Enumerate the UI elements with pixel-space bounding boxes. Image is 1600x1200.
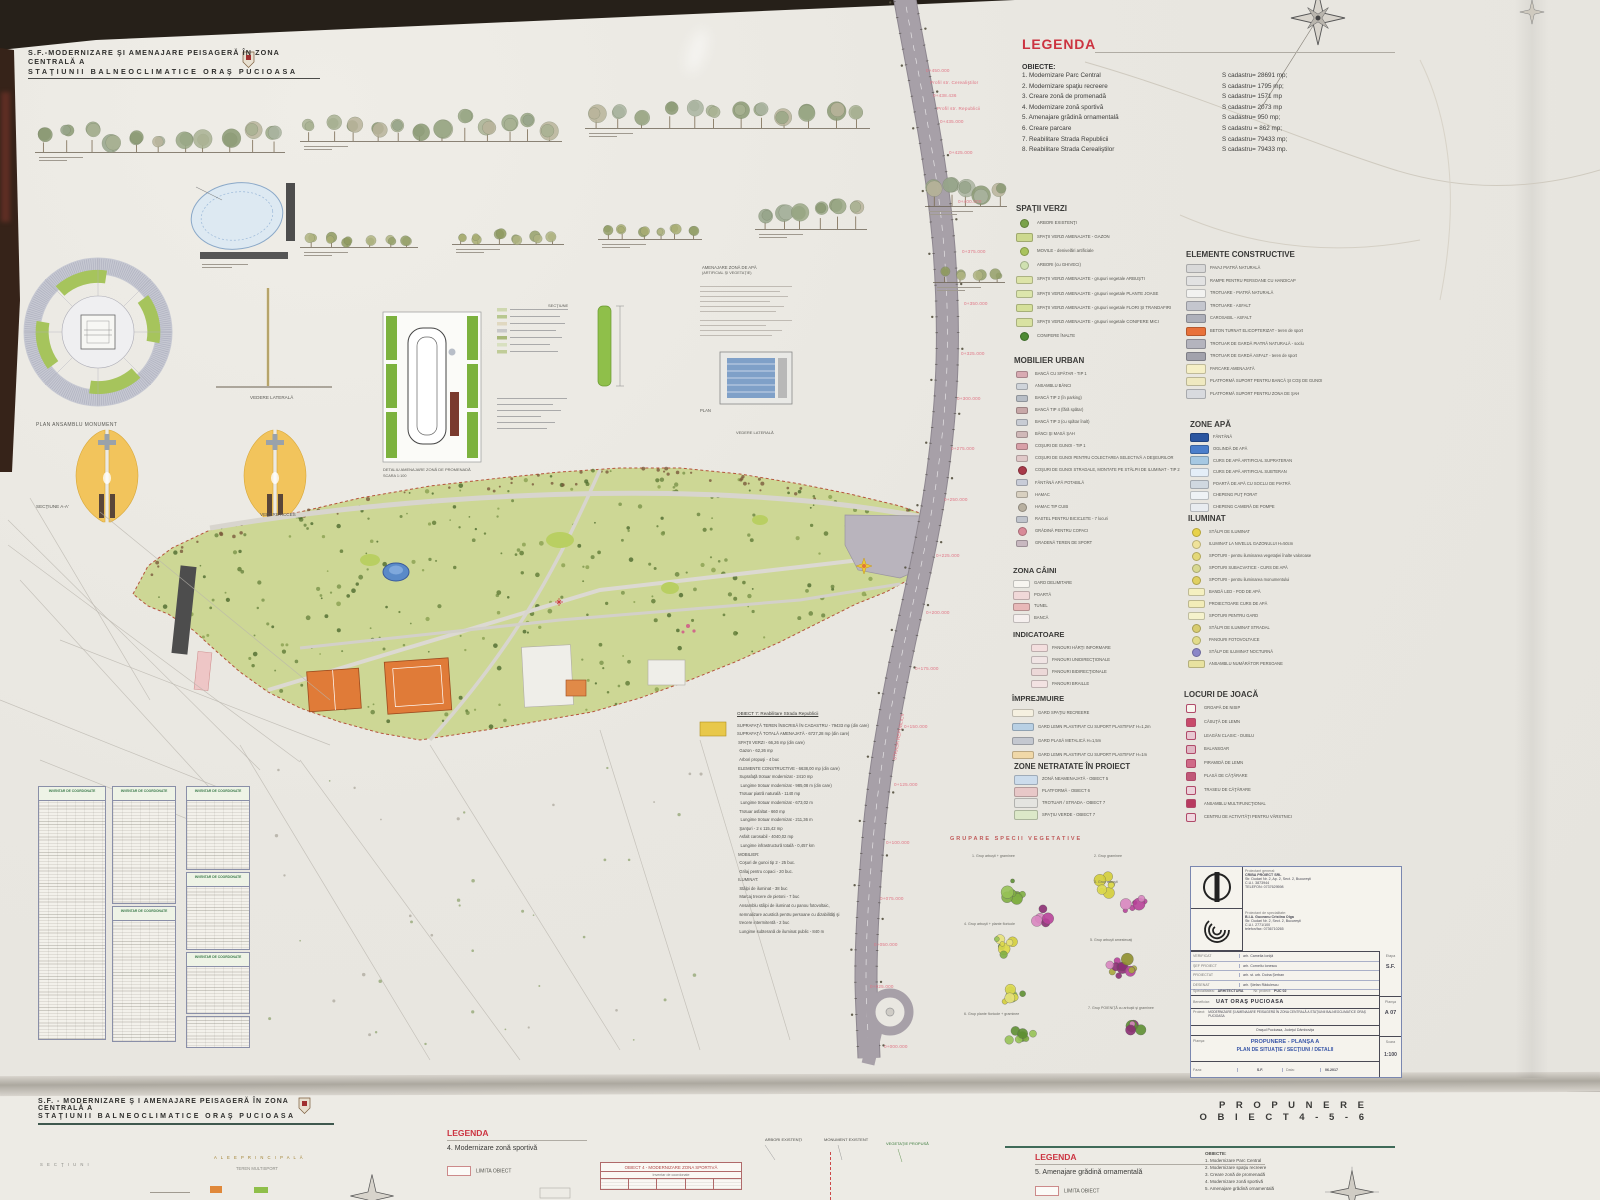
coordinate-table-header: INVENTAR DE COORDONATE — [187, 873, 249, 887]
plansa-title-1: PROPUNERE - PLANŞA A — [1191, 1036, 1379, 1045]
coordinate-table-header: INVENTAR DE COORDONATE — [187, 953, 249, 967]
object7-line: Gazon - 62,26 mp — [737, 747, 887, 756]
object-name: 6. Creare parcare — [1022, 124, 1222, 135]
chainage-label: 0+200.000 — [926, 610, 950, 615]
coordinate-table-header: INVENTAR DE COORDONATE — [187, 787, 249, 801]
legend-item-label: FÂNTÂNĂ APĂ POTABILĂ — [1035, 481, 1084, 486]
legend-item-label: TUNEL — [1034, 604, 1048, 609]
species-group-caption: 3. Grup arbuşti — [1094, 880, 1118, 884]
limit-swatch — [447, 1166, 471, 1176]
object-name: 3. Creare zonă de promenadă — [1022, 92, 1222, 103]
species-group-caption: 4. Grup arbuşti + plante floricole — [964, 922, 1015, 926]
species-group-caption: 6. Grup plante floricole + graminee — [964, 1012, 1019, 1016]
legend-section-spatii-verzi: SPAŢII VERZI ARBORI EXISTENŢISPAŢII VERZ… — [1016, 204, 1186, 344]
object7-line: semnalizare acustică pentru persoane cu … — [737, 911, 887, 920]
section-items: PANOURI HĂRŢI INFORMAREPANOURI UNIDIRECŢ… — [1013, 642, 1183, 690]
legend-item-label: BANDĂ LED - POD DE APĂ — [1209, 590, 1261, 595]
object7-lines: SUPRAFAŢĂ TEREN ÎNSCRISĂ ÎN CADASTRU - 7… — [737, 722, 887, 937]
legend-section-elemente-constructive: ELEMENTE CONSTRUCTIVE PAVAJ PIATRĂ NATUR… — [1186, 250, 1388, 401]
legend-item-label: PANOURI FOTOVOLTAICE — [1209, 638, 1259, 643]
legend-item: SPAŢII VERZI AMENAJATE - grupuri vegetal… — [1016, 315, 1186, 329]
legend-item: CURS DE APĂ ARTIFICIAL SUBTERAN — [1190, 467, 1390, 479]
water-detail-drawing — [700, 286, 792, 404]
legend4-block: LEGENDA 4. Modernizare zonă sportivă LIM… — [447, 1128, 587, 1176]
object-item: 2. Modernizare spaţiu recreere — [1205, 1164, 1274, 1171]
object7-line: Trotuar asfaltat - 660 mp — [737, 808, 887, 817]
staff-role: ŞEF PROIECT — [1191, 964, 1240, 968]
chainage-label: 0+435.000 — [940, 119, 964, 124]
legend-item: CURS DE APĂ ARTIFICIAL SUPRATERAN — [1190, 455, 1390, 467]
legend-item-label: BANCĂ CU SPĂTAR - TIP 1 — [1035, 372, 1087, 377]
general-designer-info: Proiectant general: CRIBA PROIECT SRL St… — [1245, 869, 1397, 889]
chainage-label: 0+050.000 — [874, 942, 898, 947]
date-label: Data: — [1283, 1068, 1321, 1072]
legend-swatch — [1018, 466, 1027, 475]
legend-item-label: BĂNCI ŞI MASĂ ŞAH — [1035, 432, 1075, 437]
legend-item-label: SPAŢII VERZI AMENAJATE - GAZON — [1037, 235, 1110, 240]
legend-item: SPOTURI - pentru iluminarea vegetaţiei î… — [1188, 550, 1390, 562]
chainage-label: 0+125.000 — [894, 782, 918, 787]
legend-item-label: ANSAMBLU NUMĂRĂTOR PERSOANE — [1209, 662, 1283, 667]
legend-item-label: STÂLPI DE ILUMINAT STRADAL — [1209, 626, 1270, 631]
legend-item-label: SPAŢII VERZI AMENAJATE - grupuri vegetal… — [1037, 306, 1171, 311]
legend-swatch — [1188, 600, 1205, 609]
legend-item: ZONĂ NEAMENAJATĂ - OBIECT 5 — [1014, 774, 1186, 786]
section-title: ÎMPREJMUIRE — [1012, 694, 1184, 703]
legend-swatch — [1012, 751, 1034, 760]
coordinate-table: INVENTAR DE COORDONATE — [186, 786, 250, 870]
legend-item: TRASEU DE CĂŢĂRARE — [1184, 784, 1384, 798]
legend-title: LEGENDA — [1022, 36, 1096, 52]
legend-item: PANOURI HĂRŢI INFORMARE — [1013, 642, 1183, 654]
legend-swatch — [1188, 612, 1205, 621]
monument-figure-drawing — [76, 430, 138, 522]
drawing-caption: SCARA 1:100 — [383, 474, 406, 478]
staff-role: VERIFICAT — [1191, 954, 1240, 958]
legend-item: TROTUARE - PIATRĂ NATURALĂ — [1186, 287, 1388, 300]
legend-item-label: BANCĂ TIP 4 (fără spătar) — [1035, 408, 1083, 413]
legend-item: STÂLP DE ILUMINAT NOCTURNĂ — [1188, 646, 1390, 658]
staff-rows: VERIFICAT arh. Camelia Ioniţă ŞEF PROIEC… — [1191, 951, 1379, 990]
legend-item: SPOTURI PENTRU GARD — [1188, 610, 1390, 622]
legend-item: SPAŢII VERZI AMENAJATE - grupuri vegetal… — [1016, 287, 1186, 301]
project-label: Proiect: — [1191, 1009, 1205, 1025]
object7-line: Arbori propuşi - 4 buc — [737, 756, 887, 765]
legend-item-label: TROTUARE - ASFALT — [1210, 304, 1251, 309]
legend-item: SPAŢII VERZI AMENAJATE - grupuri vegetal… — [1016, 273, 1186, 287]
coordinate-table: INVENTAR DE COORDONATE — [112, 906, 176, 1042]
sheet2-objects-list: OBIECTE: 1. Modernizare Parc Central2. M… — [1205, 1150, 1274, 1192]
legend-item: HAMAC TIP CUIB — [1014, 501, 1186, 513]
legend-item-label: COŞURI DE GUNOI - TIP 1 — [1035, 444, 1086, 449]
speciality-value: ARHITECTURA — [1215, 989, 1244, 993]
legend-item-label: PIRAMIDĂ DE LEMN — [1204, 761, 1243, 766]
object7-line: Lungime trotuar modernizat - 673,02 m — [737, 799, 887, 808]
legend-item: STÂLPI DE ILUMINAT STRADAL — [1188, 622, 1390, 634]
section-title: ELEMENTE CONSTRUCTIVE — [1186, 250, 1388, 259]
legend-item-label: SPAŢII VERZI AMENAJATE - grupuri vegetal… — [1037, 320, 1159, 325]
location-row: Oraşul Pucioasa, Judeţul Dâmboviţa — [1191, 1026, 1379, 1036]
sheet-number-value: A 07 — [1380, 1004, 1401, 1016]
object7-line: Marcaj trecere de pietoni - 7 buc — [737, 893, 887, 902]
legend-swatch — [1190, 433, 1209, 442]
legend-item-label: PAVAJ PIATRĂ NATURALĂ — [1210, 266, 1260, 271]
species-group-caption: 1. Grup arbuşti + graminee — [972, 854, 1015, 858]
legend-item: PROIECTOARE CURS DE APĂ — [1188, 598, 1390, 610]
legend-item: TROTUAR DE GARDĂ ASFALT - teren de sport — [1186, 350, 1388, 363]
staff-row: VERIFICAT arh. Camelia Ioniţă — [1191, 952, 1379, 962]
legend-swatch — [1186, 389, 1206, 399]
legend-section-zone-netratate: ZONE NETRATATE ÎN PROIECT ZONĂ NEAMENAJA… — [1014, 762, 1186, 821]
objects-items: 1. Modernizare Parc Central2. Modernizar… — [1205, 1157, 1274, 1192]
legend4-subtitle: 4. Modernizare zonă sportivă — [447, 1145, 587, 1152]
legend-item-label: ANSAMBLU MULTIFUNCŢIONAL — [1204, 802, 1266, 807]
object-name: 2. Modernizare spaţiu recreere — [1022, 82, 1222, 93]
section-title: SPAŢII VERZI — [1016, 204, 1186, 213]
legend-object-row: 8. Reabilitare Strada Cerealiştilor S ca… — [1022, 145, 1394, 156]
legend-swatch — [1016, 276, 1033, 285]
sheet2-label: A L E E P R I N C I P A L Ă — [214, 1155, 304, 1160]
object-name: 4. Modernizare zonă sportivă — [1022, 103, 1222, 114]
staff-role: PROIECTAT — [1191, 973, 1240, 977]
objects-title: OBIECTE: — [1205, 1150, 1274, 1157]
legend-item-label: CHEPENG CAMERĂ DE POMPE — [1213, 505, 1275, 510]
compass-icon-small — [1520, 0, 1544, 24]
legend-item: TROTUAR DE GARDĂ PIATRĂ NATURALĂ - soclu — [1186, 338, 1388, 351]
legend-item-label: BANCĂ TIP 2 (în parking) — [1035, 396, 1082, 401]
legend-item-label: POARTĂ — [1034, 593, 1051, 598]
legend-swatch — [1192, 552, 1201, 561]
legend-item: CHEPENG CAMERĂ DE POMPE — [1190, 502, 1390, 514]
beneficiary-label: Beneficiar: — [1191, 1000, 1210, 1004]
legend-item: PANOURI UNIDIRECŢIONALE — [1013, 654, 1183, 666]
object-area: S cadastru= 79433 mp. — [1222, 145, 1287, 156]
legend-swatch — [1018, 527, 1027, 536]
legend-section-iluminat: ILUMINAT STÂLPI DE ILUMINATILUMINAT LA N… — [1188, 514, 1390, 670]
legend-swatch — [1012, 709, 1034, 718]
legend-swatch — [1190, 480, 1209, 489]
legend-item: SPOTURI - pentru iluminarea monumentului — [1188, 574, 1390, 586]
legend-item-label: PLATFORMĂ - OBIECT 6 — [1042, 789, 1090, 794]
object7-line: ELEMENTE CONSTRUCTIVE - 6638,00 mp (din … — [737, 765, 887, 774]
legend-swatch — [1020, 332, 1029, 341]
legend-swatch — [1186, 731, 1196, 740]
legend-swatch — [1016, 395, 1028, 402]
section-title: MOBILIER URBAN — [1014, 356, 1186, 365]
legend-swatch — [1016, 290, 1033, 299]
legend-swatch — [1192, 540, 1201, 549]
legend-item: GROAPĂ DE NISIP — [1184, 702, 1384, 716]
legend-item-label: SPOTURI - pentru iluminarea monumentului — [1209, 578, 1289, 583]
legend-item-label: SPAŢIU VERDE - OBIECT 7 — [1042, 813, 1095, 818]
designer-phone: TELEFON: 0737629598 — [1245, 885, 1397, 889]
object4-table-subtitle: Inventar de coordonate — [601, 1172, 741, 1179]
legend-section-imprejmuire: ÎMPREJMUIRE GARD SPAŢIU RECREEREGARD LEM… — [1012, 694, 1184, 762]
legend-item-label: MOVILE - denivelări artificiale — [1037, 249, 1094, 254]
legend-section-mobilier-urban: MOBILIER URBAN BANCĂ CU SPĂTAR - TIP 1AN… — [1014, 356, 1186, 549]
sheet2-label: TEREN MULTISPORT — [236, 1166, 278, 1171]
legend-swatch — [1018, 503, 1027, 512]
logo-cell — [1191, 909, 1243, 951]
sheet2-title-line1: S.F. - MODERNIZARE Ş I AMENAJARE PEISAGE… — [38, 1098, 334, 1112]
legend-item-label: RAMPE PENTRU PERSOANE CU HANDICAP — [1210, 279, 1296, 284]
legend-item-label: CĂSUŢĂ DE LEMN — [1204, 720, 1240, 725]
chainage-label: 0+300.000 — [957, 396, 981, 401]
separator-line — [1005, 1146, 1395, 1148]
object7-line: Ansamblu stâlpi de iluminat cu panou fot… — [737, 902, 887, 911]
legend-item-label: ARBORI EXISTENŢI — [1037, 221, 1077, 226]
legend-swatch — [1016, 407, 1028, 414]
legend-swatch — [1186, 799, 1196, 808]
legend-swatch — [1186, 364, 1206, 374]
legend-item: RAMPE PENTRU PERSOANE CU HANDICAP — [1186, 275, 1388, 288]
object7-line: Lungime subterană de iluminat public - 8… — [737, 928, 887, 937]
legend-swatch — [1020, 261, 1029, 270]
coordinate-table: INVENTAR DE COORDONATE — [112, 786, 176, 904]
staff-name: arh. Corneliu Ionescu — [1240, 964, 1277, 968]
object-name: 8. Reabilitare Strada Cerealiştilor — [1022, 145, 1222, 156]
legend-swatch — [1186, 813, 1196, 822]
section-title: ZONE NETRATATE ÎN PROIECT — [1014, 762, 1186, 771]
legend-item: SPOTURI SUBACVATICE - CURS DE APĂ — [1188, 562, 1390, 574]
legend-object-row: 5. Amenajare grădină ornamentală S cadas… — [1022, 113, 1394, 124]
legend-item: CĂSUŢĂ DE LEMN — [1184, 716, 1384, 730]
legend-swatch — [1014, 798, 1038, 808]
project-number-label: Nr. proiect: — [1244, 989, 1271, 993]
staff-name: arh. st. urb. Doina Şerban — [1240, 973, 1284, 977]
object-name: 5. Amenajare grădină ornamentală — [1022, 113, 1222, 124]
legend-item: HAMAC — [1014, 489, 1186, 501]
sheet-number-cell: Planşa A 07 — [1379, 996, 1401, 1036]
chainage-label: 0+350.000 — [964, 301, 988, 306]
legend-item-label: CURS DE APĂ ARTIFICIAL SUPRATERAN — [1213, 459, 1292, 464]
coordinate-table-header: INVENTAR DE COORDONATE — [113, 787, 175, 801]
drawing-caption: VEDERE LATERALĂ — [736, 430, 774, 435]
legend-item-label: BALANSOAR — [1204, 747, 1229, 752]
legend-swatch — [1016, 318, 1033, 327]
legend-swatch — [1031, 680, 1048, 689]
legend-item: GARD LEMN PLASTIFIAT CU SUPORT PLASTIFIA… — [1012, 720, 1184, 734]
drawing-caption: VEDERE ACCES — [260, 512, 296, 517]
legend-item: GRĂDINĂ PENTRU COPACI — [1014, 525, 1186, 537]
chainage-label: 0+438.436 — [933, 93, 957, 98]
coordinate-table: INVENTAR DE COORDONATE — [186, 952, 250, 1014]
section-items: ARBORI EXISTENŢISPAŢII VERZI AMENAJATE -… — [1016, 216, 1186, 344]
specialist-designer-info: Proiectant de specialitate: B.I.A. Gucea… — [1245, 911, 1397, 931]
legend-swatch — [1186, 339, 1206, 349]
legend-item: BANCĂ TIP 3 (cu spătar înalt) — [1014, 416, 1186, 428]
chainage-label: 0+150.000 — [904, 724, 928, 729]
legend-item-label: GARD LEMN PLASTIFIAT CU SUPORT PLASTIFIA… — [1038, 753, 1147, 758]
project-title: MODERNIZARE ŞI AMENAJARE PEISAGERĂ ÎN ZO… — [1205, 1009, 1379, 1025]
legend-item-label: PANOURI BIDIRECŢIONALE — [1052, 670, 1107, 675]
legend-item-label: PANOURI BRAILLE — [1052, 682, 1089, 687]
drawing-caption: PLAN ANSAMBLU MONUMENT — [36, 422, 117, 428]
monument-elevation-drawing — [216, 288, 332, 387]
plansa-label: Planşa: — [1193, 1039, 1205, 1043]
chainage-label: Profil str. Cerealiştilor — [930, 80, 978, 85]
designer-phone: telefon/fax: 0736710265 — [1245, 927, 1397, 931]
drawing-caption: DETALIU AMENAJARE ZONĂ DE PROMENADĂ — [383, 467, 471, 472]
legend-item: COŞURI DE GUNOI - TIP 1 — [1014, 441, 1186, 453]
legend-swatch — [1186, 772, 1196, 781]
legend-swatch — [1186, 704, 1196, 713]
compass-icon — [350, 1174, 393, 1200]
legend-item-label: TROTUAR DE GARDĂ PIATRĂ NATURALĂ - soclu — [1210, 342, 1304, 347]
stage-cell: Etapa S.F. — [1379, 951, 1401, 996]
legend-section-indicatoare: INDICATOARE PANOURI HĂRŢI INFORMAREPANOU… — [1013, 630, 1183, 690]
species-group-caption: 5. Grup arbuşti amestecaţi — [1090, 938, 1132, 942]
species-group-caption: 2. Grup graminee — [1094, 854, 1122, 858]
legend-swatch — [1192, 564, 1201, 573]
object7-line: SUPRAFAŢĂ TEREN ÎNSCRISĂ ÎN CADASTRU - 7… — [737, 722, 887, 731]
object7-line: Grilaj pentru copaci - 20 buc. — [737, 868, 887, 877]
legend-item-label: GROAPĂ DE NISIP — [1204, 706, 1240, 711]
legend-item-label: COŞURI DE GUNOI PENTRU COLECTAREA SELECT… — [1035, 456, 1173, 461]
legend-item-label: BETON TURNAT ELICOPTERIZAT - teren de sp… — [1210, 329, 1303, 334]
legend-swatch — [1186, 759, 1196, 768]
legend-item-label: CAROSABIL - ASFALT — [1210, 316, 1252, 321]
drawing-caption: SECŢIUNE A-A' — [36, 504, 69, 509]
legend-section-zona-caini: ZONA CÂINI GARD DELIMITAREPOARTĂTUNELBAN… — [1013, 566, 1183, 624]
legend-swatch — [1013, 603, 1030, 612]
title-block-cartouche: Proiectant general: CRIBA PROIECT SRL St… — [1190, 866, 1402, 1078]
legend-swatch — [1188, 660, 1205, 669]
legend-item: ANSAMBLU NUMĂRĂTOR PERSOANE — [1188, 658, 1390, 670]
legend-item: BETON TURNAT ELICOPTERIZAT - teren de sp… — [1186, 325, 1388, 338]
section-title: INDICATOARE — [1013, 630, 1183, 639]
legend-object-row: 1. Modernizare Parc Central S cadastru= … — [1022, 71, 1394, 82]
legend-title-rule — [1095, 52, 1395, 53]
object-name: 7. Reabilitare Strada Republicii — [1022, 135, 1222, 146]
object7-title: OBIECT 7: Reabilitare Strada Republicii — [737, 710, 887, 719]
legend-swatch — [1192, 624, 1201, 633]
legend-swatch — [1192, 528, 1201, 537]
legend-swatch — [1186, 745, 1196, 754]
legend-item: PLATFORMĂ SUPORT PENTRU ZONA DE ŞAH — [1186, 388, 1388, 401]
legend-item-label: SPOTURI PENTRU GARD — [1209, 614, 1258, 619]
speciality-row: Specialitatea: ARHITECTURA Nr. proiect: … — [1191, 986, 1379, 996]
drawing-caption: PLAN — [700, 408, 711, 413]
legend-item: COŞURI DE GUNOI PENTRU COLECTAREA SELECT… — [1014, 453, 1186, 465]
section-items: PAVAJ PIATRĂ NATURALĂRAMPE PENTRU PERSOA… — [1186, 262, 1388, 401]
legend-swatch — [1016, 516, 1028, 523]
legend-item: BANCĂ CU SPĂTAR - TIP 1 — [1014, 368, 1186, 380]
legend-item: PLASĂ DE CĂŢĂRARE — [1184, 770, 1384, 784]
object7-line: Şanţuri - 2 x 115,42 mp — [737, 825, 887, 834]
legend-swatch — [1016, 455, 1028, 462]
staff-row: ŞEF PROIECT arh. Corneliu Ionescu — [1191, 962, 1379, 972]
section-items: GROAPĂ DE NISIPCĂSUŢĂ DE LEMNLEAGĂN CLAS… — [1184, 702, 1384, 824]
legend-item: ANSAMBLU BĂNCI — [1014, 380, 1186, 392]
object7-line: ILUMINAT: — [737, 876, 887, 885]
legend-item: GARD DELIMITARE — [1013, 578, 1183, 590]
legend-swatch — [1186, 352, 1206, 362]
object-area: S cadastru= 79433 mp; — [1222, 135, 1287, 146]
legend-item-label: TROTUARE - PIATRĂ NATURALĂ — [1210, 291, 1273, 296]
legend-item: GARD SPAŢIU RECREERE — [1012, 706, 1184, 720]
legend-swatch — [1186, 301, 1206, 311]
chainage-label: 0+400.000 — [958, 199, 982, 204]
sheet-title-line2: STAŢIUNII BALNEOCLIMATICE ORAŞ PUCIOASA — [28, 67, 320, 76]
legend-item-label: PLATFORMĂ SUPORT PENTRU ZONA DE ŞAH — [1210, 392, 1299, 397]
legend-item: PANOURI BIDIRECŢIONALE — [1013, 666, 1183, 678]
coordinate-table: INVENTAR DE COORDONATE — [38, 786, 106, 1040]
legend-item-label: OGLINDĂ DE APĂ — [1213, 447, 1247, 452]
object7-line: Suprafaţă trotuar modernizat - 2410 mp — [737, 773, 887, 782]
section-title: LOCURI DE JOACĂ — [1184, 690, 1384, 699]
legend-item-label: GRĂDINĂ PENTRU COPACI — [1035, 529, 1088, 534]
beneficiary-row: Beneficiar: UAT ORAŞ PUCIOASA — [1191, 996, 1379, 1009]
legend-item-label: PLASĂ DE CĂŢĂRARE — [1204, 774, 1247, 779]
coordinate-table-header: INVENTAR DE COORDONATE — [113, 907, 175, 921]
object7-line: Coşuri de gunoi tip 2 - 25 buc. — [737, 859, 887, 868]
legend-item-label: GARD LEMN PLASTIFIAT CU SUPORT PLASTIFIA… — [1038, 725, 1151, 730]
legend-item: GRADENĂ TEREN DE SPORT — [1014, 537, 1186, 549]
object-item: 1. Modernizare Parc Central — [1205, 1157, 1274, 1164]
legend-item: BANCĂ TIP 4 (fără spătar) — [1014, 404, 1186, 416]
project-row: Proiect: MODERNIZARE ŞI AMENAJARE PEISAG… — [1191, 1009, 1379, 1026]
section-title: ILUMINAT — [1188, 514, 1390, 523]
legend-swatch — [1186, 718, 1196, 727]
tree-sections — [35, 100, 1007, 291]
section-items: BANCĂ CU SPĂTAR - TIP 1ANSAMBLU BĂNCIBAN… — [1014, 368, 1186, 549]
chainage-label: 0+425.000 — [949, 150, 973, 155]
section-detail-drawing — [497, 306, 624, 429]
object-area: S cadastru= 28691 mp; — [1222, 71, 1287, 82]
legend-swatch — [1190, 456, 1209, 465]
legend-section-locuri-de-joaca: LOCURI DE JOACĂ GROAPĂ DE NISIPCĂSUŢĂ DE… — [1184, 690, 1384, 824]
legend-item-label: COŞURI DE GUNOI STRADALE, MONTATE PE STÂ… — [1035, 468, 1180, 473]
legend-item: POARTĂ — [1013, 590, 1183, 602]
legend-swatch — [1186, 786, 1196, 795]
legend-object-row: 3. Creare zonă de promenadă S cadastru= … — [1022, 92, 1394, 103]
legend-item-label: CHEPENG PUŢ FORAT — [1213, 493, 1257, 498]
logo-cell — [1191, 867, 1243, 909]
chainage-label: 0+325.000 — [961, 351, 985, 356]
legend-item-label: STÂLP DE ILUMINAT NOCTURNĂ — [1209, 650, 1273, 655]
legend-item-label: CENTRU DE ACTIVITĂŢI PENTRU VÂRSTNICI — [1204, 815, 1292, 820]
object7-line: SUPRAFAŢĂ TOTALĂ AMENAJATĂ - 6727,28 mp … — [737, 730, 887, 739]
object7-line: Stâlpi de iluminat - 38 buc — [737, 885, 887, 894]
object7-stats-block: OBIECT 7: Reabilitare Strada Republicii … — [737, 710, 887, 936]
legend-swatch — [1016, 304, 1033, 313]
stage-value: S.F. — [1380, 958, 1401, 970]
legend-item-label: CURS DE APĂ ARTIFICIAL SUBTERAN — [1213, 470, 1287, 475]
object-area: S cadastru = 862 mp; — [1222, 124, 1282, 135]
chainage-label: 0+375.000 — [962, 249, 986, 254]
legend-swatch — [1016, 431, 1028, 438]
legend-swatch — [1016, 443, 1028, 450]
object4-table-title: OBIECT 4 - MODERNIZARE ZONA SPORTIVĂ — [601, 1163, 741, 1172]
compass-icon — [1325, 1167, 1379, 1200]
coordinate-table — [186, 1016, 250, 1048]
legend-objects: OBIECTE: 1. Modernizare Parc Central S c… — [1022, 64, 1394, 156]
legend-item: GARD PLASĂ METALICĂ H=1,5m — [1012, 734, 1184, 748]
pond-detail-drawing — [187, 177, 295, 268]
legend-swatch — [1192, 576, 1201, 585]
phase-row: Faza: S.F. Data: 06.2017 — [1191, 1062, 1379, 1077]
legend-item: PARCARE AMENAJATĂ — [1186, 363, 1388, 376]
legend-swatch — [1186, 327, 1206, 337]
legend-item: CONIFERE ÎNALTE — [1016, 330, 1186, 344]
drawing-caption: VEDERE LATERALĂ — [250, 395, 293, 400]
legend-item: RASTEL PENTRU BICICLETE - 7 locuri — [1014, 513, 1186, 525]
chainage-label: 0+250.000 — [944, 497, 968, 502]
section-title: ZONA CÂINI — [1013, 566, 1183, 575]
section-items: ZONĂ NEAMENAJATĂ - OBIECT 5PLATFORMĂ - O… — [1014, 774, 1186, 821]
beneficiary-value: UAT ORAŞ PUCIOASA — [1210, 999, 1284, 1005]
